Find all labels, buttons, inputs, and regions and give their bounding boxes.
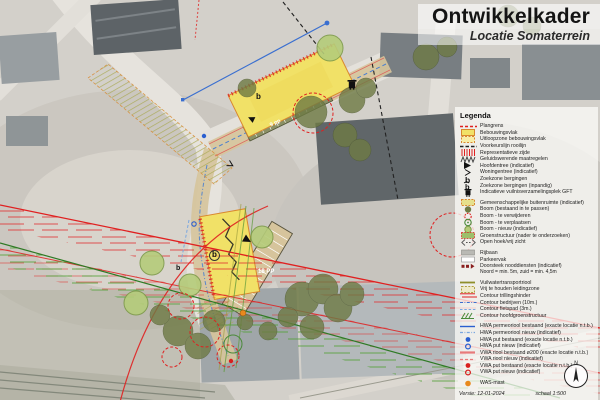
legend-item-vuilnisverzamelingsplek-gft: Indicatieve vuilnisverzamelingsplek GFT [460,189,596,196]
legend-item-rijbaan: Rijbaan [460,250,596,257]
legend-item-plangrens: Plangrens [460,123,596,130]
vuilnisverzamelingsplek-gft-icon [460,188,477,197]
legend-item-boom-nieuw: Boom - nieuw (indicatief) [460,226,596,233]
compass-north-letter: N [574,361,578,367]
hwa-put-marker [202,134,206,138]
legend-item-boom-bestaand: Boom (bestaand in te passen) [460,206,596,213]
voorkeurslijn-oost [371,57,398,200]
berging-zone-label: b [256,92,261,101]
legend-panel: Legenda PlangrensBebouwingsvlakUitloopzo… [455,107,598,400]
legend-item-zoekzone-bergingen-inpandig: bZoekzone bergingen (inpandig) [460,182,596,189]
legend-item-contour-fietspad: Contour fietspad (3m.) [460,306,596,313]
legend-item-hoofdentree: Hoofdentree (indicatief) [460,163,596,170]
vwa-put-marker [229,359,233,363]
legend-item-open-hoek-vrij-zicht: Open hoek/vrij zicht [460,239,596,246]
legend-item-geluidswerende-maatregelen: Geluidswerende maatregelen [460,156,596,163]
legend-item-parkeervak: Parkeervak [460,256,596,263]
legend-item-boom-te-verwijderen: Boom - te verwijderen [460,213,596,220]
legend-item-uitloopzone-bebouwingsvlak: Uitloopzone bebouwingsvlak [460,136,596,143]
was-mast-icon [460,379,477,388]
legend-item-woningentree: Woningentree (indicatief) [460,169,596,176]
legend-item-contour-trillingshinder: Contour trillingshinder [460,293,596,300]
was-mast-marker [240,310,246,316]
legend-item-boom-te-verplaatsen: Boom - te verplaatsen [460,219,596,226]
legend-item-doorsteek-nooddiensten: Doorsteek nooddiensten (indicatief) [460,263,596,270]
legend-items: PlangrensBebouwingsvlakUitloopzone bebou… [460,123,596,386]
plangrens-segment [195,0,199,40]
scale-label: schaal 1:500 [535,391,566,397]
legend-item-representatieve-zijde: Representatieve zijde [460,149,596,156]
legend-item-bebouwingsvlak: Bebouwingsvlak [460,130,596,137]
legend-item-vuilwatertransportriool: Vuilwatertransportriool [460,279,596,286]
berging-zone-label: b [176,265,180,272]
legend-item-note: Noord = min. 5m, zuid = min. 4,5m [480,269,596,275]
north-arrow-icon: N [562,360,590,390]
legend-item-gemeenschappelijke-buitenruimte: Gemeenschappelijke buitenruimte (indicat… [460,200,596,207]
title-block: Ontwikkelkader Locatie Somaterrein [418,4,600,45]
berging-zone-label: b [209,250,220,261]
legend-item-zoekzone-bergingen: bZoekzone bergingen [460,176,596,183]
legend-item-hwa-riool-bestaand: HWA permeoriool bestaand (exacte locatie… [460,323,596,330]
legend-item-contour-bedrijven: Contour bedrijven (10m.) [460,299,596,306]
site-plan-canvas: 9 pp 18 PP b b b Ontwikkelkader Locatie … [0,0,600,400]
legend-item-vwa-riool-bestaand: VWA riool bestaand ø200 (exacte locatie … [460,349,596,356]
contour-hoofdgroenstructuur-icon [460,311,477,320]
page-title: Ontwikkelkader [418,4,600,29]
legend-item-vrij-te-houden-leidingzone: Vrij te houden leidingzone [460,286,596,293]
legend-item-groenstructuur: Groenstructuur (nader te onderzoeken) [460,233,596,240]
legend-item-hwa-put-nieuw: HWA put nieuw (indicatief) [460,343,596,350]
doorsteek-nooddiensten-icon [460,262,477,271]
legend-item-voorkeurslijn-rooilijn: Voorkeurslijn rooilijn [460,143,596,150]
parking-count-label-south: 18 PP [258,269,274,275]
open-hoek-vrij-zicht-icon [460,238,477,247]
version-label: Versie: 12-01-2024 [459,391,505,397]
legend-heading: Legenda [460,111,596,120]
vwa-put-nieuw-icon [460,368,477,377]
pipeline-zone-hatch [88,64,232,184]
legend-item-contour-hoofdgroenstructuur: Contour hoofdgroenstructuur [460,312,596,319]
legend-item-hwa-riool-nieuw: HWA permeoriool nieuw (indicatief) [460,330,596,337]
legend-item-hwa-put-bestaand: HWA put bestaand (exacte locatie n.t.b.) [460,336,596,343]
page-subtitle: Locatie Somaterrein [418,29,600,45]
